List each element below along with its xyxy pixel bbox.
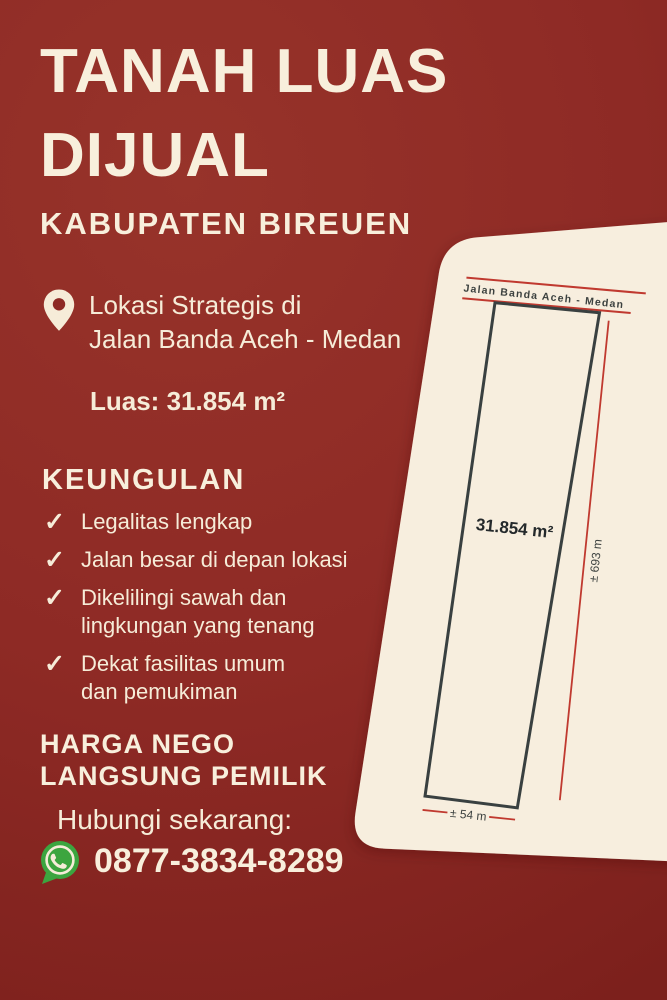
- advantage-text: Dekat fasilitas umum dan pemukiman: [81, 650, 285, 706]
- advantage-text: Dikelilingi sawah dan lingkungan yang te…: [81, 584, 315, 640]
- check-icon: ✓: [44, 584, 65, 612]
- title-line-2: DIJUAL: [40, 114, 448, 198]
- location-pin-icon: [42, 288, 76, 332]
- check-icon: ✓: [44, 650, 65, 678]
- advantage-text: Legalitas lengkap: [81, 508, 252, 536]
- page-title: TANAH LUAS DIJUAL: [40, 30, 448, 198]
- price-nego-text: HARGA NEGO LANGSUNG PEMILIK: [40, 728, 328, 792]
- card-background: [355, 213, 667, 866]
- list-item: ✓ Jalan besar di depan lokasi: [44, 546, 374, 574]
- list-item: ✓ Dikelilingi sawah dan lingkungan yang …: [44, 584, 374, 640]
- land-sale-poster: Jalan Banda Aceh - Medan 31.854 m² ± 693…: [0, 0, 667, 1000]
- phone-number: 0877-3834-8289: [94, 842, 344, 881]
- advantages-heading: KEUNGULAN: [42, 464, 245, 497]
- advantage-text: Jalan besar di depan lokasi: [81, 546, 348, 574]
- contact-cta: Hubungi sekarang:: [57, 804, 292, 836]
- phone-row: 0877-3834-8289: [34, 838, 344, 885]
- land-area-text: Luas: 31.854 m²: [90, 386, 285, 417]
- whatsapp-icon: [34, 838, 84, 885]
- check-icon: ✓: [44, 508, 65, 536]
- list-item: ✓ Dekat fasilitas umum dan pemukiman: [44, 650, 374, 706]
- title-line-1: TANAH LUAS: [40, 30, 448, 114]
- list-item: ✓ Legalitas lengkap: [44, 508, 374, 536]
- location-row: Lokasi Strategis di Jalan Banda Aceh - M…: [42, 288, 401, 356]
- location-text: Lokasi Strategis di Jalan Banda Aceh - M…: [89, 288, 401, 356]
- poster-subtitle: KABUPATEN BIREUEN: [40, 206, 412, 242]
- advantages-list: ✓ Legalitas lengkap ✓ Jalan besar di dep…: [44, 508, 374, 716]
- check-icon: ✓: [44, 546, 65, 574]
